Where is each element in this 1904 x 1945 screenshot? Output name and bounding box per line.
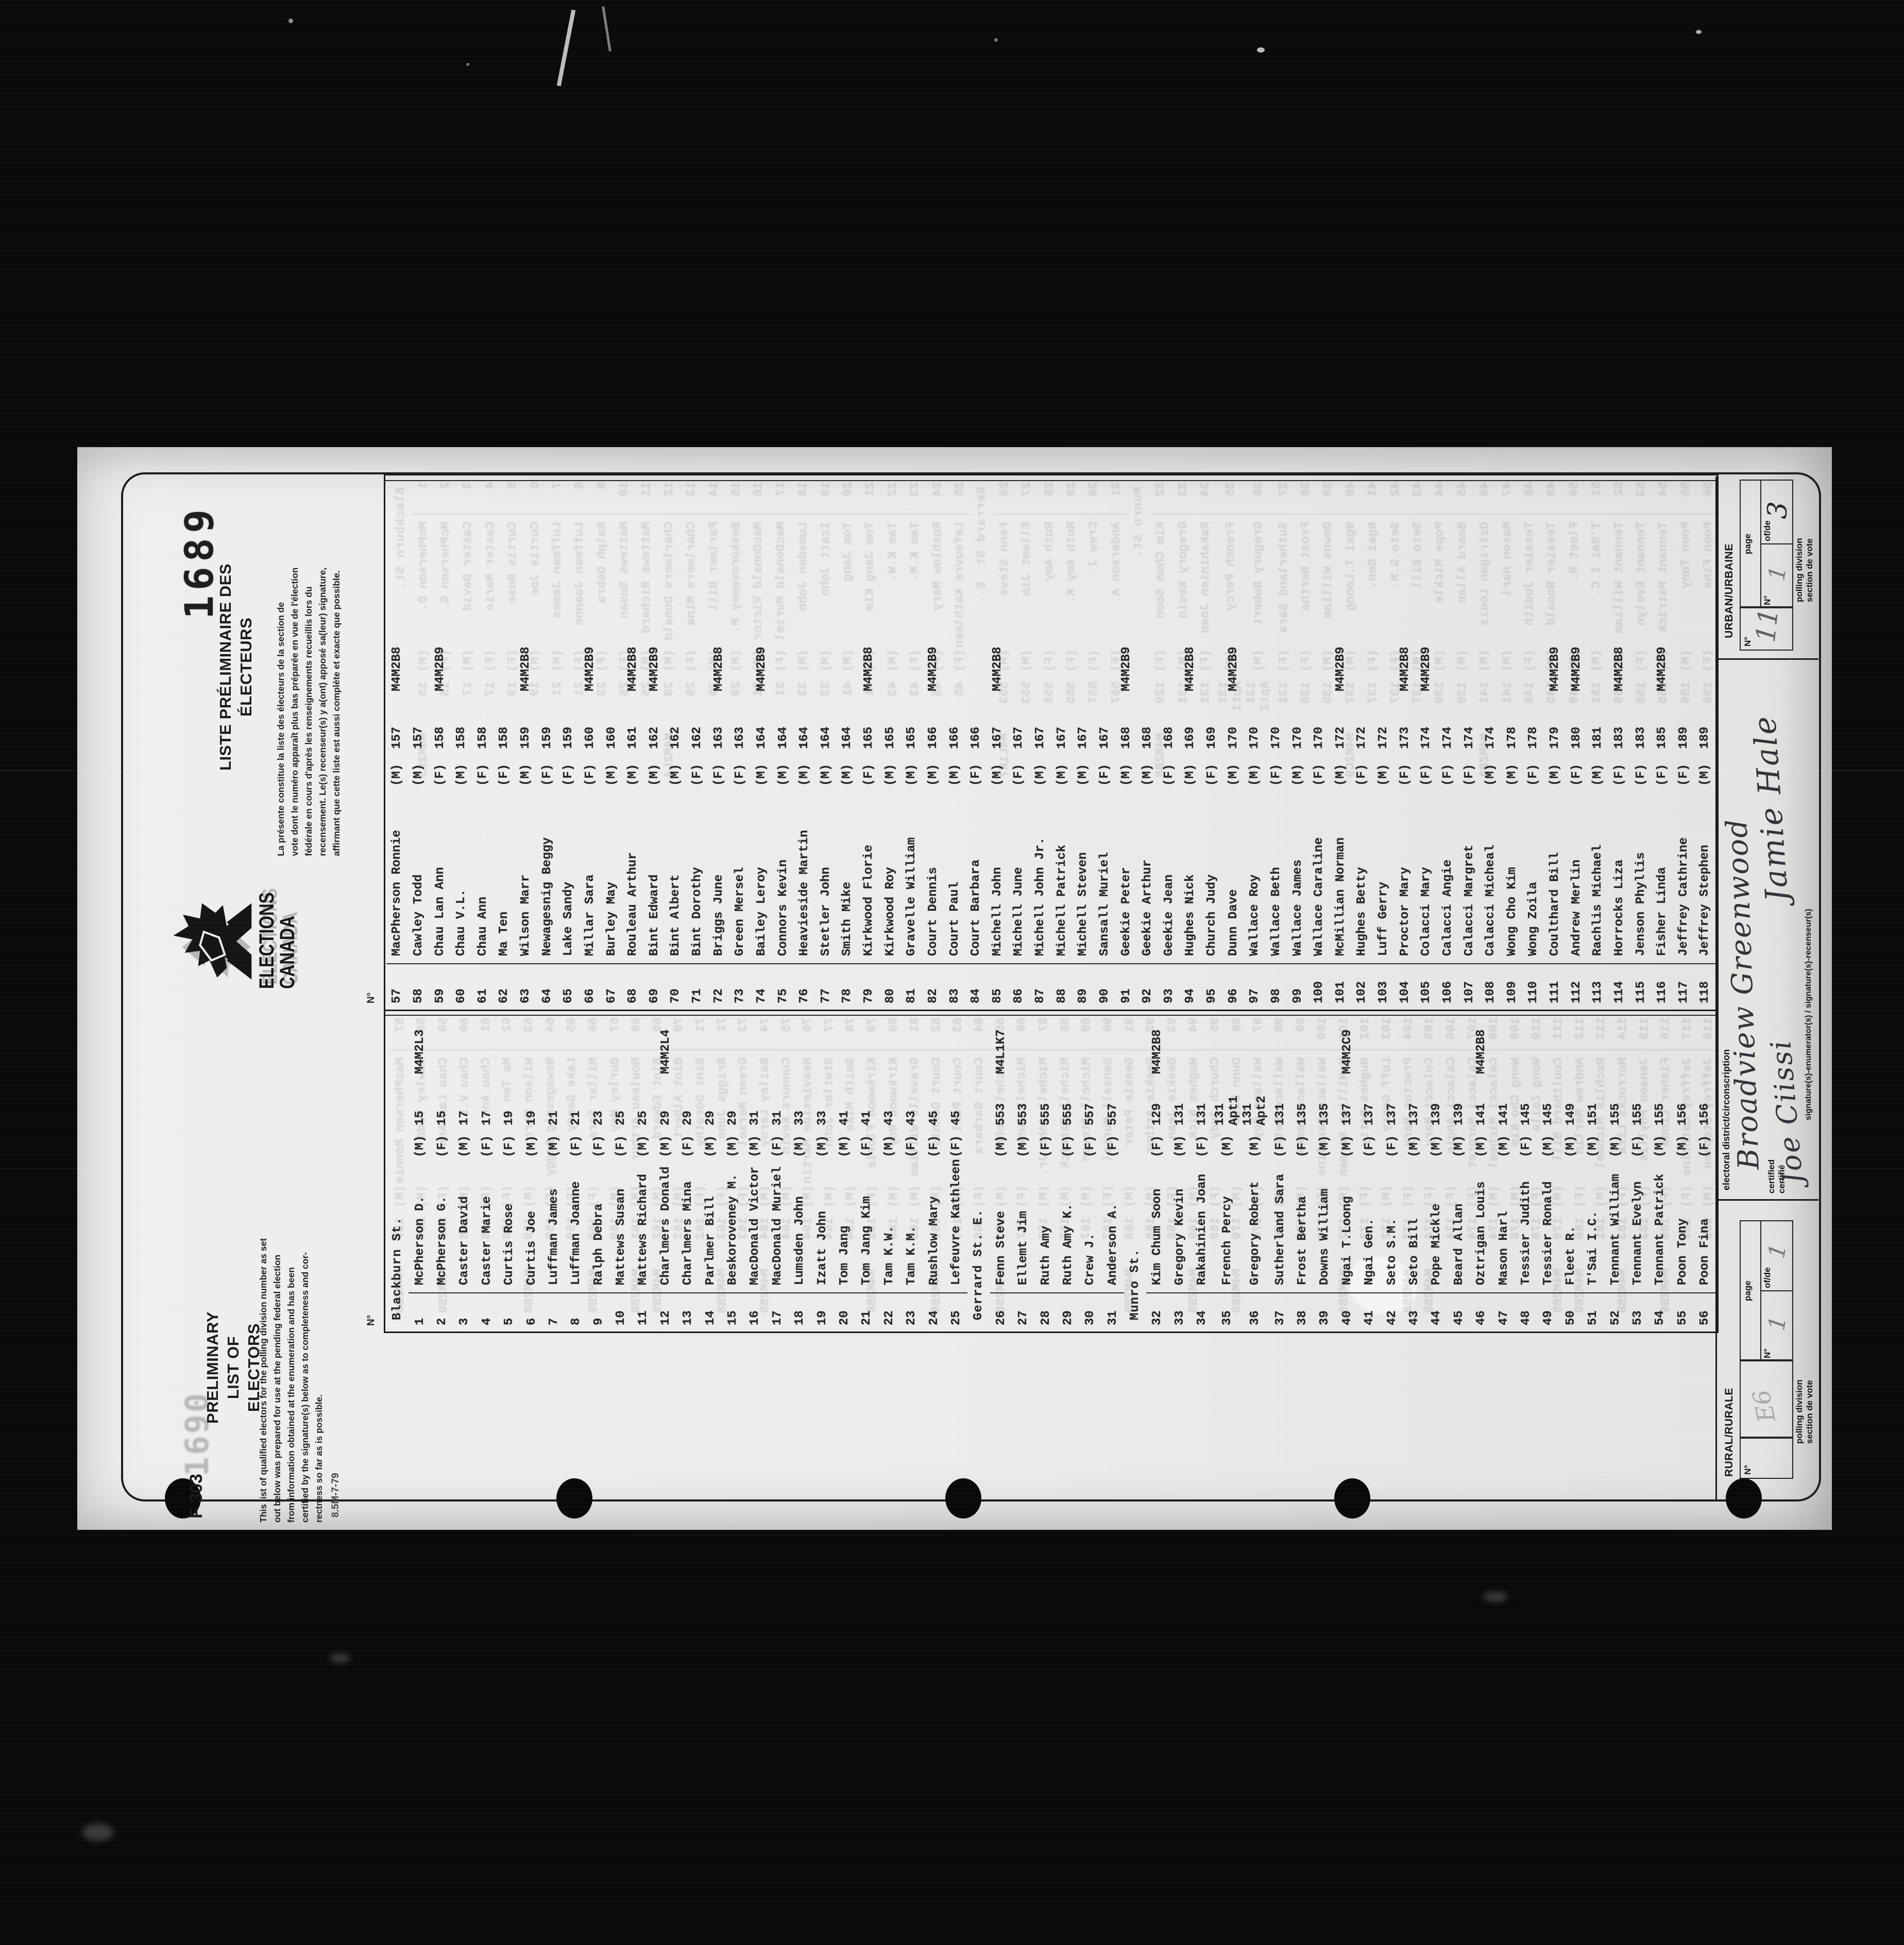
elector-row: 72Briggs June(F)163M4M2B8 [708,475,729,1010]
elector-addr: 160 [583,691,597,749]
elector-mf: (M) [454,749,468,786]
elector-no: 28 [1034,1292,1057,1332]
elector-row: 98Wallace Beth(F)170 [1266,475,1287,1010]
elector-no: 102 [1351,963,1373,1010]
elector-mf: (M) [1340,1125,1354,1157]
elector-name: Horrocks Liza [1612,786,1626,963]
elector-no: 98 [1266,963,1287,1010]
elector-name: Charlmers Donald [659,1157,673,1292]
rural-no-value: E6 [1747,1387,1781,1425]
elector-name: Beard Allan [1452,1157,1466,1292]
elector-addr: 29 [726,1074,740,1125]
film-scratch [557,10,575,87]
street-name: Gerrard St. E. [972,1209,985,1332]
elector-addr: 131 Apt2 [1241,1074,1269,1125]
elector-no: 23 [900,1292,923,1332]
elector-no: 95 [1201,963,1223,1010]
no-column-header-right: N° [366,993,377,1003]
elector-mf: (F) [1385,1125,1399,1157]
elector-name: Wallace James [1291,786,1305,963]
elector-name: Tessier Judith [1519,1157,1533,1292]
elector-name: Downs William [1318,1157,1332,1292]
elector-no: 6 [520,1292,542,1332]
elector-addr: 557 [1106,1074,1120,1125]
rural-page-cell: page N° 1 of/de 1 [1740,1220,1793,1361]
elector-row: 29Ruth Amy K.(F)555 [1057,1011,1079,1332]
elector-mf: (F) [480,1125,494,1157]
elector-no: 60 [451,963,472,1010]
elector-addr: 183 [1634,691,1648,749]
elector-name: Bint Edward [648,786,661,963]
elector-name: Michell Patrick [1055,786,1069,963]
elector-no: 61 [472,963,494,1010]
elector-row: 34Rakahinien Joan(F)131 [1191,1011,1213,1332]
elector-mf: (F) [433,749,447,786]
elector-addr: 167 [1033,691,1047,749]
elector-name: Sansall Muriel [1098,786,1112,963]
elector-name: Seto S.M. [1385,1157,1399,1292]
elector-no: 30 [1079,1292,1101,1332]
title-french: LISTE PRÉLIMINAIRE DES ÉLECTEURS [215,554,257,780]
elector-addr: 168 [1162,691,1176,749]
elector-row: 116Fisher Linda(F)185M4M2B9 [1652,475,1673,1010]
elector-row: 78Smith Mike(M)164 [837,475,858,1010]
elector-addr: 555 [1039,1074,1053,1125]
elector-no: 84 [965,963,987,1010]
elector-no: 14 [699,1292,721,1332]
electors-table-right-half: 57MacPherson Ronnie(M)157M4M2B858Cawley … [385,475,1717,1010]
elector-addr: 137 [1340,1074,1354,1125]
urban-ofde-value: 3 [1762,501,1794,520]
urban-no-cell: N° 11 [1740,606,1793,651]
elector-no: 93 [1159,963,1180,1010]
elector-name: Jenson Phyllis [1634,786,1648,963]
elector-name: Wong Cho Kim [1505,786,1519,963]
elector-row: 87Michell John Jr.(M)167 [1030,475,1051,1010]
elector-name: Andrew Merlin [1570,786,1584,963]
title-french-line1: LISTE PRÉLIMINAIRE DES [215,554,236,780]
elector-no: 113 [1587,963,1609,1010]
elector-pc: M4M2B9 [433,475,447,691]
elector-mf: (F) [1463,749,1476,786]
elector-name: Fisher Linda [1655,786,1669,963]
paragraph-french-line: vote dont le numéro apparaît plus bas pr… [288,552,302,856]
elector-mf: (M) [1141,749,1154,786]
elector-addr: 33 [815,1074,829,1125]
elector-no: 64 [536,963,558,1010]
elector-addr: 160 [605,691,619,749]
elector-addr: 167 [1098,691,1112,749]
elector-no: 43 [1403,1292,1425,1332]
elector-mf: (M) [991,749,1005,786]
elector-mf: (F) [927,1125,941,1157]
elector-addr: 21 [569,1074,583,1125]
elector-mf: (F) [1655,749,1669,786]
title-french-line2: ÉLECTEURS [236,554,257,780]
elector-addr: 181 [1591,691,1605,749]
elector-no: 62 [494,963,515,1010]
film-speck [466,63,469,66]
elector-addr: 131 Apt1 [1213,1074,1241,1125]
elector-mf: (M) [883,749,897,786]
elector-name: Caster Marie [480,1157,494,1292]
elector-mf: (M) [626,749,640,786]
elector-no: 111 [1544,963,1566,1010]
elector-mf: (M) [1609,1125,1623,1157]
elector-pc: M4M2B8 [862,475,876,691]
punch-hole [945,1478,981,1519]
elector-addr: 157 [412,691,426,749]
elector-pc: M4M2B8 [1183,475,1197,691]
elector-no: 32 [1146,1292,1168,1332]
elector-name: Tam K.M. [905,1157,919,1292]
paragraph-french-line: recensement. Le(s) recenseur(s) y a(ont)… [316,552,330,856]
elector-no: 96 [1222,963,1244,1010]
elector-addr: 162 [669,691,683,749]
elector-pc: M4M2B9 [1227,475,1240,691]
elector-mf: (M) [793,1125,807,1157]
elector-no: 3 [453,1292,475,1332]
elector-mf: (F) [1195,1125,1209,1157]
rural-ofde-label: of/de [1762,1267,1773,1288]
elector-name: Wong Zoila [1526,786,1540,963]
elector-name: Gregory Robert [1248,1157,1262,1292]
elector-mf: (F) [860,1125,874,1157]
elector-row: 82Court Dennis(M)166M4M2B9 [923,475,944,1010]
elector-row: 92Geekie Arthur(M)168 [1137,475,1159,1010]
film-scratch [602,6,611,52]
elector-no: 76 [794,963,815,1010]
elector-pc: M4M2B9 [1548,475,1562,691]
elector-mf: (M) [1653,1125,1667,1157]
elector-addr: 170 [1312,691,1326,749]
elector-addr: 15 [435,1074,449,1125]
elector-name: Millar Sara [583,786,597,963]
elector-addr: 131 [1173,1074,1187,1125]
elector-no: 79 [858,963,880,1010]
elector-mf: (M) [726,1125,740,1157]
elector-no: 48 [1515,1292,1537,1332]
elector-addr: 169 [1183,691,1197,749]
elector-mf: (F) [1698,1125,1712,1157]
elector-row: 107Calacci Margret(F)174 [1458,475,1480,1010]
elector-mf: (F) [540,749,554,786]
elector-mf: (M) [1452,1125,1466,1157]
elector-row: 4Caster Marie(F)17 [476,1011,498,1332]
elector-name: MacDonald Victor [748,1157,762,1292]
footer-divider [1717,658,1818,660]
elector-no: 116 [1652,963,1673,1010]
elector-name: Ralph Debra [592,1157,606,1292]
elector-no: 51 [1582,1292,1604,1332]
elector-name: Lumsden John [793,1157,807,1292]
elector-pc: M4M2B8 [1612,475,1626,691]
elector-no: 1 [409,1292,431,1332]
elector-mf: (M) [1676,1125,1690,1157]
elector-name: Smith Mike [840,786,854,963]
elector-addr: 178 [1526,691,1540,749]
film-smudge [1484,1592,1507,1602]
elector-no: 5 [498,1292,520,1332]
elector-mf: (M) [390,749,404,786]
elector-addr: 45 [927,1074,941,1125]
rural-page-no-label: N° [1762,1349,1773,1358]
elector-mf: (M) [547,1125,561,1157]
elector-row: 56Poon Fina(F)156 [1694,1011,1716,1332]
elector-no: 106 [1437,963,1459,1010]
elector-no: 92 [1137,963,1159,1010]
elector-no: 94 [1180,963,1201,1010]
elector-name: Wilson Marr [519,786,533,963]
elector-mf: (F) [690,749,704,786]
elector-row: 1McPherson D.(M)15M4M2L3 [409,1011,431,1332]
elector-mf: (F) [949,1125,963,1157]
elector-addr: 555 [1061,1074,1075,1125]
elector-name: McMillian Norman [1334,786,1348,963]
elector-mf: (F) [712,749,726,786]
elector-no: 34 [1191,1292,1213,1332]
elector-name: French Percy [1220,1157,1234,1292]
elector-row: 80Kirkwood Roy(M)165 [879,475,901,1010]
elector-addr: 165 [905,691,919,749]
elector-name: Lake Sandy [562,786,575,963]
elector-no: 86 [1008,963,1030,1010]
elector-addr: 174 [1484,691,1498,749]
elector-row: 64Newagesnig Beggy(F)159 [536,475,558,1010]
elector-addr: 164 [840,691,854,749]
elector-no: 22 [878,1292,900,1332]
elector-name: Curtis Joe [525,1157,539,1292]
elector-name: Michell June [1012,786,1026,963]
elector-no: 31 [1102,1292,1124,1332]
elector-name: Tom Jang [838,1157,852,1292]
elector-no: 91 [1115,963,1137,1010]
elector-name: Newagesnig Beggy [540,786,554,963]
elector-name: Tennant William [1609,1157,1623,1292]
elector-mf: (M) [648,749,661,786]
elector-row: 30Crew J.(F)557 [1079,1011,1101,1332]
elector-row: 114Horrocks Liza(F)183M4M2B8 [1609,475,1630,1010]
elector-pc: M4M2B9 [1419,475,1433,691]
elector-name: Dunn Dave [1227,786,1240,963]
rural-polling-label: polling division section de vote [1794,1379,1815,1444]
elector-addr: 45 [949,1074,963,1125]
elector-mf: (M) [1541,1125,1555,1157]
elector-name: Chau V.L. [454,786,468,963]
street-name: Munro St. [1128,1249,1142,1332]
elector-addr: 17 [457,1074,471,1125]
elector-mf: (M) [636,1125,650,1157]
elector-name: Tessier Ronald [1541,1157,1555,1292]
elector-name: Ellemt Jim [1016,1157,1030,1292]
elector-row: 79Kirkwood Florie(F)165M4M2B8 [858,475,880,1010]
elector-addr: 158 [454,691,468,749]
urban-no-value: 11 [1750,607,1785,644]
elector-name: Bint Albert [669,786,683,963]
elector-addr: 158 [497,691,511,749]
elector-row: 94Hughes Nick(M)169M4M2B8 [1180,475,1201,1010]
elector-no: 49 [1537,1292,1559,1332]
elector-row: 118Jeffrey Stephen(M)189 [1694,475,1716,1010]
elector-mf: (M) [1564,1125,1578,1157]
elector-pc: M4M2B9 [648,475,661,691]
elector-mf: (F) [733,749,747,786]
elector-no: 73 [729,963,751,1010]
elector-row: 9Ralph Debra(F)23 [588,1011,610,1332]
rural-page-no-value: 1 [1763,1315,1791,1333]
elector-mf: (M) [905,749,919,786]
elector-mf: (M) [525,1125,539,1157]
elector-mf: (M) [776,749,790,786]
elector-row: 11Mattews Richard(M)25 [632,1011,654,1332]
elector-mf: (M) [1698,749,1712,786]
paragraph-english-line: certified by the signature(s) below as t… [298,1281,312,1523]
elector-row: 22Tam K.W.(M)43 [878,1011,900,1332]
elector-row: 55Poon Tony(M)156 [1671,1011,1693,1332]
elector-row: 45Beard Allan(M)139 [1448,1011,1470,1332]
elector-no: 63 [515,963,537,1010]
elector-mf: (F) [1363,1125,1376,1157]
elector-addr: 131 [1273,1074,1287,1125]
elector-row: 38Frost Bertha(F)135 [1291,1011,1314,1332]
elector-row: 83Court Paul(M)166 [944,475,965,1010]
elector-pc: M4M2B9 [755,475,769,691]
elector-addr: 164 [776,691,790,749]
elector-no: 117 [1673,963,1695,1010]
elector-addr: 183 [1612,691,1626,749]
elector-addr: 170 [1291,691,1305,749]
elector-name: Geekie Arthur [1141,786,1154,963]
elector-no: 109 [1502,963,1523,1010]
elector-addr: 167 [991,691,1005,749]
elector-addr: 170 [1269,691,1283,749]
elector-row: 3Caster David(M)17 [453,1011,475,1332]
elector-mf: (F) [1106,1125,1120,1157]
elector-addr: 180 [1570,691,1584,749]
elector-addr: 163 [712,691,726,749]
elector-mf: (M) [1291,749,1305,786]
elector-name: Luff Gerry [1376,786,1390,963]
elector-row: 41Ngai Gen.(F)137 [1358,1011,1381,1332]
elector-mf: (M) [815,1125,829,1157]
elector-row: 115Jenson Phyllis(F)183 [1630,475,1652,1010]
elector-name: Mattews Susan [614,1157,628,1292]
elector-row: 16MacDonald Victor(M)31 [744,1011,766,1332]
elector-row: 46Oztrigan Louis(M)141M4M2B8 [1470,1011,1492,1332]
elector-addr: 164 [755,691,769,749]
elector-mf: (F) [771,1125,785,1157]
paragraph-french: La présente constitue la liste des élect… [274,552,344,856]
elector-name: Court Barbara [969,786,983,963]
elector-no: 80 [879,963,901,1010]
elector-no: 4 [476,1292,498,1332]
elector-addr: 189 [1677,691,1691,749]
elector-no: 26 [990,1292,1012,1332]
elector-name: Church Judy [1205,786,1219,963]
elector-addr: 159 [562,691,575,749]
elector-name: Kirkwood Florie [862,786,876,963]
elector-row: 88Michell Patrick(M)167 [1051,475,1073,1010]
elector-addr: 170 [1248,691,1262,749]
paragraph-english-line: This list of qualified electors for the … [257,1281,270,1523]
elector-mf: (F) [1083,1125,1097,1157]
elector-addr: 156 [1676,1074,1690,1125]
elector-row: 28Ruth Amy(F)555 [1034,1011,1057,1332]
elector-row: 77Stetler John(M)164 [815,475,837,1010]
elector-row: 110Wong Zoila(F)178 [1523,475,1544,1010]
elector-name: Chau Lan Ann [433,786,447,963]
elector-name: Tam K.W. [882,1157,896,1292]
elector-name: McPherson G. [435,1157,449,1292]
film-smudge [330,1653,350,1663]
elector-mf: (M) [412,749,426,786]
elector-row: 39Downs William(M)135 [1314,1011,1336,1332]
elector-row: 74Bailey Leroy(M)164M4M2B9 [751,475,773,1010]
elector-no: 36 [1241,1292,1269,1332]
elector-row: 96Dunn Dave(M)170M4M2B9 [1222,475,1244,1010]
street-heading: Gerrard St. E. [967,1011,990,1332]
elector-row: 42Seto S.M.(F)137 [1381,1011,1403,1332]
elector-mf: (M) [838,1125,852,1157]
elector-addr: 29 [704,1074,718,1125]
elector-addr: 141 [1474,1074,1488,1125]
elector-row: 85Michell John(M)167M4M2B8 [987,475,1009,1010]
elector-no: 29 [1057,1292,1079,1332]
elector-name: Ruth Amy K. [1061,1157,1075,1292]
elector-pc: M4M2B9 [1119,475,1133,691]
elector-addr: 172 [1376,691,1390,749]
elector-row: 68Rouleau Arthur(M)161M4M2B8 [622,475,644,1010]
elector-no: 71 [687,963,708,1010]
elector-mf: (M) [1248,749,1262,786]
elector-name: Charlmers Mina [681,1157,695,1292]
elector-row: 18Lumsden John(M)33 [789,1011,811,1332]
elector-mf: (F) [1273,1125,1287,1157]
elector-row: 12Charlmers Donald(M)29M4M2L4 [655,1011,677,1332]
elector-no: 37 [1269,1292,1291,1332]
elector-mf: (M) [1548,749,1562,786]
elector-mf: (F) [1677,749,1691,786]
elector-name: Proctor Mary [1398,786,1412,963]
microfilm-scan: F 303 1690 8.5M-7-79 PRELIMINARY LIST OF… [0,0,1904,1945]
elector-no: 97 [1244,963,1266,1010]
urban-ofde-label: of/de [1762,520,1773,541]
elector-row: 54Tennant Patrick(M)155 [1649,1011,1671,1332]
elector-row: 113Rachlis Michael(M)181 [1587,475,1609,1010]
elector-mf: (F) [497,749,511,786]
elector-mf: (M) [1119,749,1133,786]
elector-name: Luffman James [547,1157,561,1292]
elector-no: 112 [1566,963,1587,1010]
elector-mf: (M) [1474,1125,1488,1157]
elector-row: 109Wong Cho Kim(M)178 [1502,475,1523,1010]
elector-row: 106Calacci Angie(F)174 [1437,475,1459,1010]
elector-row: 23Tam K.M.(F)43 [900,1011,923,1332]
elector-mf: (M) [1497,1125,1511,1157]
elector-no: 68 [622,963,644,1010]
elector-no: 65 [558,963,580,1010]
elector-addr: 168 [1141,691,1154,749]
elector-row: 40Ngai T.Loong(M)137M4M2C9 [1336,1011,1358,1332]
elector-row: 65Lake Sandy(F)159 [558,475,580,1010]
elector-addr: 163 [733,691,747,749]
elector-addr: 33 [793,1074,807,1125]
elector-mf: (M) [1220,1125,1234,1157]
elector-name: Mason Harl [1497,1157,1511,1292]
elector-name: Michell John [991,786,1005,963]
elector-addr: 158 [433,691,447,749]
elector-mf: (F) [1296,1125,1310,1157]
